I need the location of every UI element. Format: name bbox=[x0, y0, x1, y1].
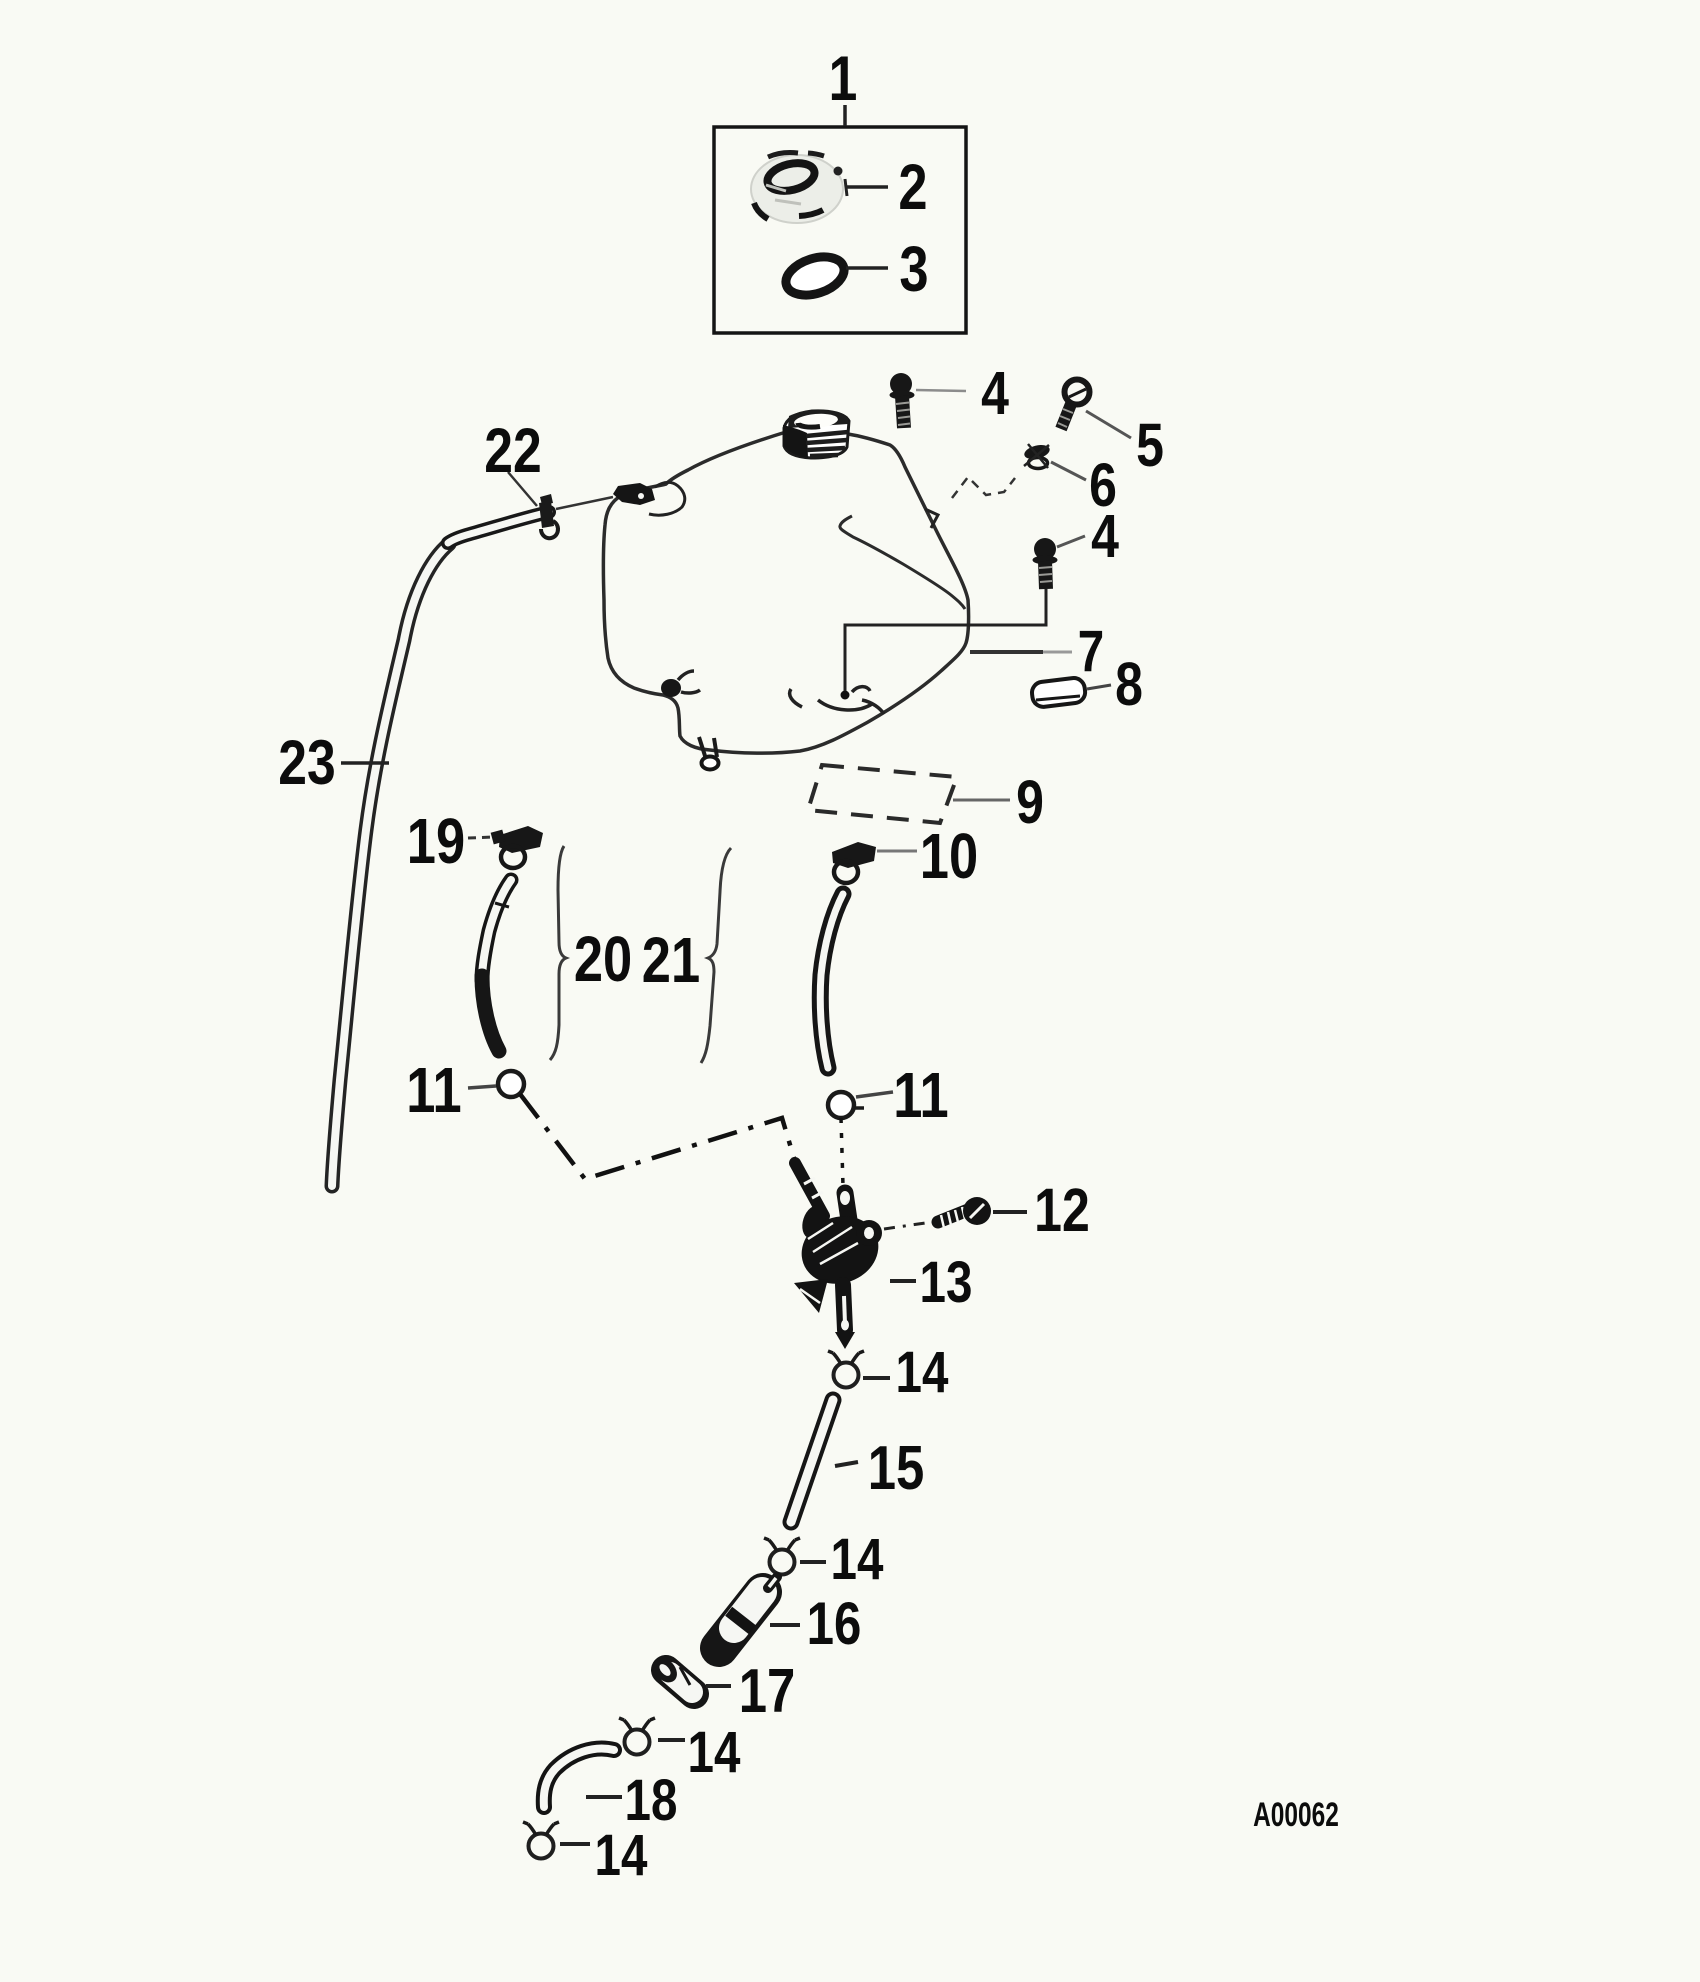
svg-text:21: 21 bbox=[642, 925, 700, 996]
svg-text:13: 13 bbox=[920, 1251, 973, 1316]
svg-text:2: 2 bbox=[898, 152, 927, 223]
svg-text:4: 4 bbox=[1091, 502, 1119, 570]
svg-text:A00062: A00062 bbox=[1253, 1796, 1339, 1834]
svg-text:12: 12 bbox=[1034, 1176, 1090, 1244]
svg-text:8: 8 bbox=[1115, 650, 1143, 718]
svg-text:14: 14 bbox=[688, 1721, 741, 1786]
svg-text:5: 5 bbox=[1136, 411, 1164, 479]
svg-text:3: 3 bbox=[899, 234, 928, 305]
svg-text:23: 23 bbox=[278, 728, 335, 798]
svg-text:10: 10 bbox=[920, 821, 978, 892]
svg-text:19: 19 bbox=[407, 806, 465, 877]
svg-text:7: 7 bbox=[1078, 620, 1104, 685]
svg-text:16: 16 bbox=[807, 1589, 862, 1657]
svg-text:14: 14 bbox=[831, 1528, 884, 1593]
svg-text:11: 11 bbox=[893, 1060, 948, 1131]
svg-text:20: 20 bbox=[574, 924, 632, 995]
svg-text:22: 22 bbox=[484, 416, 541, 486]
svg-text:1: 1 bbox=[829, 44, 858, 114]
svg-text:9: 9 bbox=[1016, 768, 1044, 836]
svg-text:14: 14 bbox=[896, 1341, 949, 1406]
svg-text:11: 11 bbox=[406, 1055, 461, 1126]
svg-text:14: 14 bbox=[595, 1824, 648, 1889]
svg-text:4: 4 bbox=[981, 359, 1009, 427]
svg-text:15: 15 bbox=[868, 1434, 925, 1503]
svg-text:17: 17 bbox=[739, 1657, 796, 1726]
